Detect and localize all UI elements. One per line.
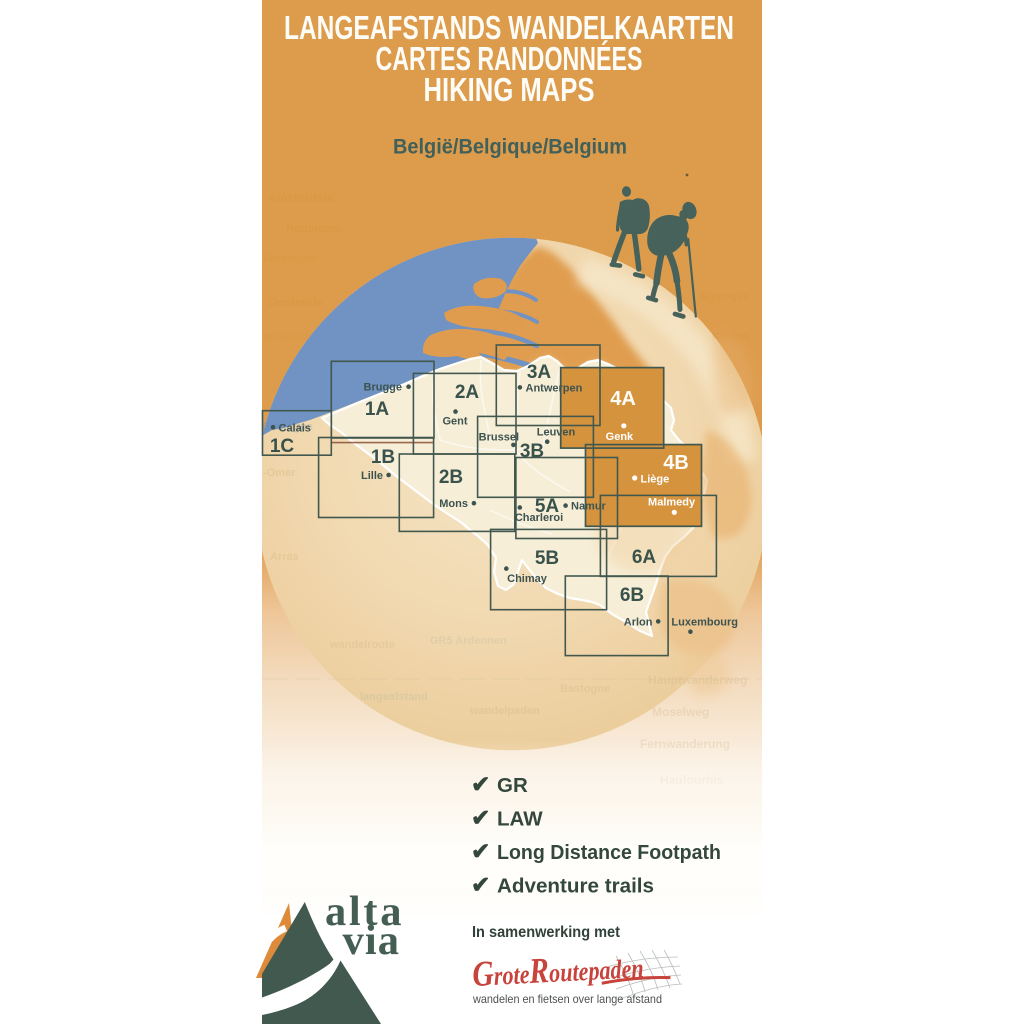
- svg-text:✔: ✔: [471, 804, 490, 830]
- svg-text:Bastogne: Bastogne: [560, 683, 610, 695]
- svg-text:2B: 2B: [439, 467, 463, 488]
- svg-text:Adventure trails: Adventure trails: [497, 875, 654, 898]
- svg-text:wandelen en fietsen over lange: wandelen en fietsen over lange afstand: [472, 992, 662, 1006]
- svg-text:België/Belgique/Belgium: België/Belgique/Belgium: [393, 135, 627, 158]
- svg-text:Mons: Mons: [439, 498, 468, 510]
- svg-text:Calais: Calais: [279, 422, 311, 434]
- svg-text:Long Distance Footpath: Long Distance Footpath: [497, 841, 721, 864]
- svg-text:Arlon: Arlon: [624, 616, 653, 628]
- svg-text:Amsterdam: Amsterdam: [268, 191, 334, 205]
- svg-text:Liège: Liège: [641, 474, 670, 486]
- svg-text:Brugge: Brugge: [364, 382, 403, 394]
- svg-text:LAW: LAW: [497, 807, 543, 830]
- svg-text:wandelroute: wandelroute: [329, 639, 395, 651]
- svg-text:3A: 3A: [527, 362, 552, 383]
- svg-text:In samenwerking met: In samenwerking met: [472, 924, 621, 941]
- svg-text:4A: 4A: [610, 388, 636, 410]
- svg-text:Luxembourg: Luxembourg: [671, 617, 738, 629]
- svg-text:Hauptwanderweg: Hauptwanderweg: [648, 673, 747, 687]
- svg-text:Brussel: Brussel: [479, 432, 519, 444]
- svg-text:Arras: Arras: [270, 551, 299, 563]
- svg-text:Leuven: Leuven: [537, 427, 576, 439]
- svg-text:Genk: Genk: [606, 431, 634, 443]
- svg-text:HIKING MAPS: HIKING MAPS: [424, 71, 595, 108]
- svg-text:6B: 6B: [620, 585, 644, 606]
- svg-text:1B: 1B: [371, 447, 395, 468]
- svg-text:✔: ✔: [471, 771, 490, 797]
- svg-text:Chimay: Chimay: [507, 573, 548, 585]
- svg-text:✔: ✔: [471, 838, 490, 864]
- svg-text:GR: GR: [497, 774, 528, 797]
- svg-text:Keulen: Keulen: [712, 331, 749, 343]
- svg-text:St-Omer: St-Omer: [252, 467, 296, 479]
- svg-text:Antwerpen: Antwerpen: [526, 382, 583, 394]
- svg-text:4B: 4B: [663, 452, 689, 474]
- svg-text:Oostende: Oostende: [268, 295, 324, 309]
- svg-text:Charleroi: Charleroi: [515, 512, 563, 524]
- svg-text:6A: 6A: [632, 547, 657, 568]
- svg-text:Rotterdam: Rotterdam: [286, 223, 341, 235]
- svg-text:3B: 3B: [520, 441, 544, 462]
- svg-text:via: via: [343, 917, 400, 964]
- svg-text:GR5 Ardennen: GR5 Ardennen: [430, 635, 507, 647]
- svg-text:✔: ✔: [471, 872, 490, 898]
- svg-text:Duinkerke: Duinkerke: [258, 331, 311, 343]
- svg-text:Vlissingen: Vlissingen: [262, 253, 317, 265]
- svg-text:1C: 1C: [270, 436, 295, 457]
- svg-text:2A: 2A: [455, 382, 480, 403]
- svg-text:1A: 1A: [365, 399, 390, 420]
- svg-text:Malmedy: Malmedy: [648, 497, 696, 509]
- svg-text:Lille: Lille: [361, 470, 383, 482]
- svg-text:Nijmegen: Nijmegen: [700, 291, 750, 303]
- svg-text:Gent: Gent: [442, 416, 467, 428]
- svg-text:5B: 5B: [535, 548, 559, 569]
- svg-text:Namur: Namur: [571, 501, 607, 513]
